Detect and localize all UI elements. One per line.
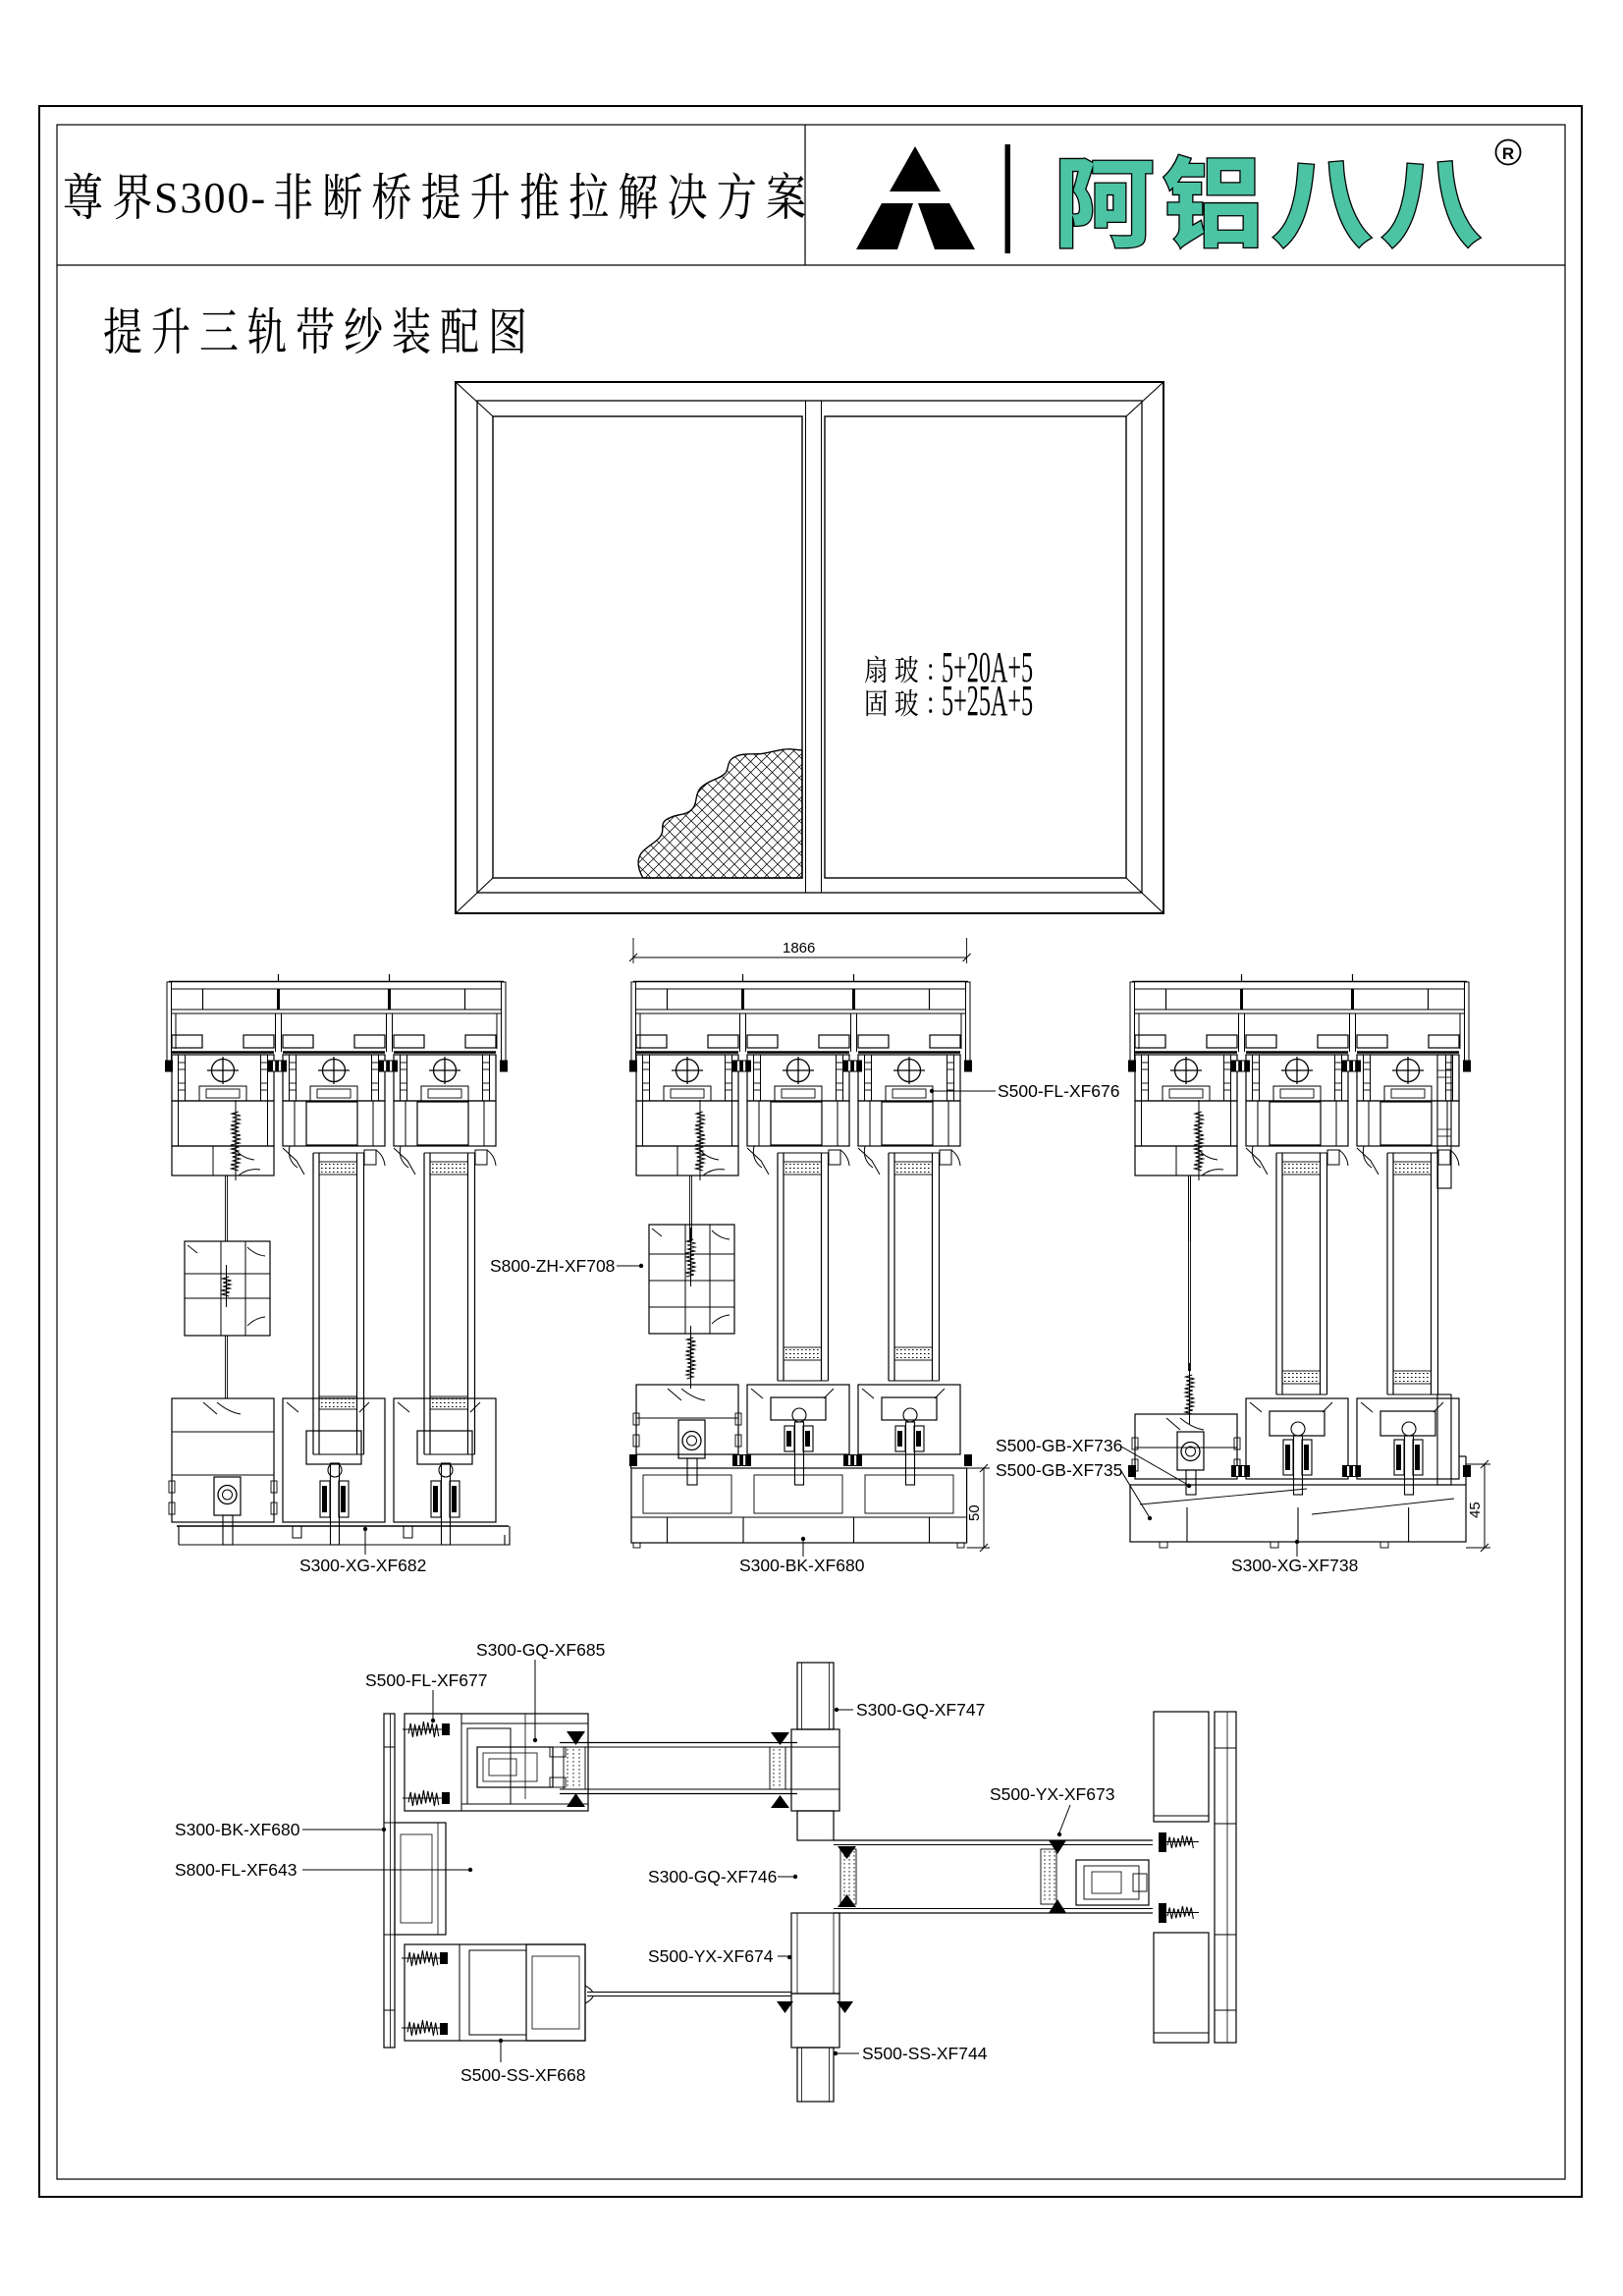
svg-text:50: 50	[966, 1504, 983, 1521]
svg-text:S500-GB-XF736: S500-GB-XF736	[996, 1436, 1122, 1455]
svg-text:S300-XG-XF738: S300-XG-XF738	[1231, 1556, 1358, 1575]
svg-text:R: R	[1502, 144, 1514, 163]
svg-text:S500-GB-XF735: S500-GB-XF735	[996, 1460, 1122, 1480]
svg-text:S500-FL-XF676: S500-FL-XF676	[998, 1081, 1120, 1101]
svg-text:S300-XG-XF682: S300-XG-XF682	[299, 1556, 426, 1575]
svg-text:S300-GQ-XF685: S300-GQ-XF685	[476, 1640, 605, 1660]
svg-text:S500-YX-XF674: S500-YX-XF674	[648, 1946, 774, 1966]
svg-text:S800-ZH-XF708: S800-ZH-XF708	[490, 1256, 615, 1276]
svg-text:45: 45	[1467, 1502, 1484, 1518]
svg-text:S800-FL-XF643: S800-FL-XF643	[175, 1860, 298, 1880]
svg-text:S500-SS-XF744: S500-SS-XF744	[862, 2044, 988, 2063]
svg-text:5+25A+5: 5+25A+5	[942, 676, 1033, 725]
svg-text:S300-: S300-	[154, 174, 267, 222]
svg-text:S500-FL-XF677: S500-FL-XF677	[365, 1670, 488, 1690]
svg-text:1866: 1866	[783, 940, 815, 957]
svg-text:S500-YX-XF673: S500-YX-XF673	[990, 1784, 1114, 1804]
svg-text:S500-SS-XF668: S500-SS-XF668	[460, 2065, 585, 2085]
svg-text:S300-BK-XF680: S300-BK-XF680	[739, 1556, 865, 1575]
svg-text:S300-GQ-XF746: S300-GQ-XF746	[648, 1867, 777, 1886]
svg-text:S300-GQ-XF747: S300-GQ-XF747	[856, 1700, 985, 1720]
svg-text:S300-BK-XF680: S300-BK-XF680	[175, 1820, 300, 1839]
